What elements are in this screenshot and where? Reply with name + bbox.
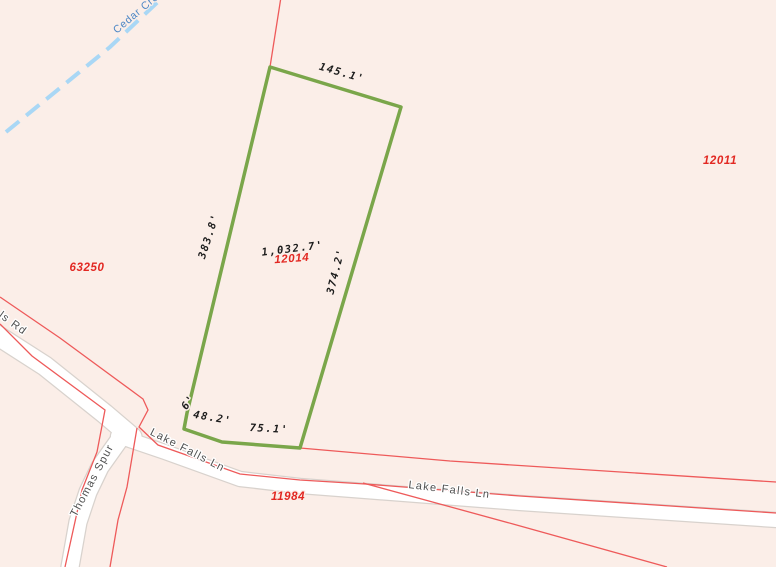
selected-parcel-id-label: 12014 — [274, 252, 310, 266]
parcel-id-label: 12011 — [703, 155, 737, 167]
map-container: 145.1'383.8'374.2'6'48.2'75.1'1,032.7'12… — [0, 0, 776, 567]
map-viewport[interactable]: 145.1'383.8'374.2'6'48.2'75.1'1,032.7'12… — [0, 0, 776, 567]
dimension-label: 75.1' — [249, 422, 289, 436]
map-background — [0, 0, 776, 567]
parcel-id-label: 63250 — [70, 262, 105, 274]
parcel-id-label: 11984 — [271, 491, 305, 503]
